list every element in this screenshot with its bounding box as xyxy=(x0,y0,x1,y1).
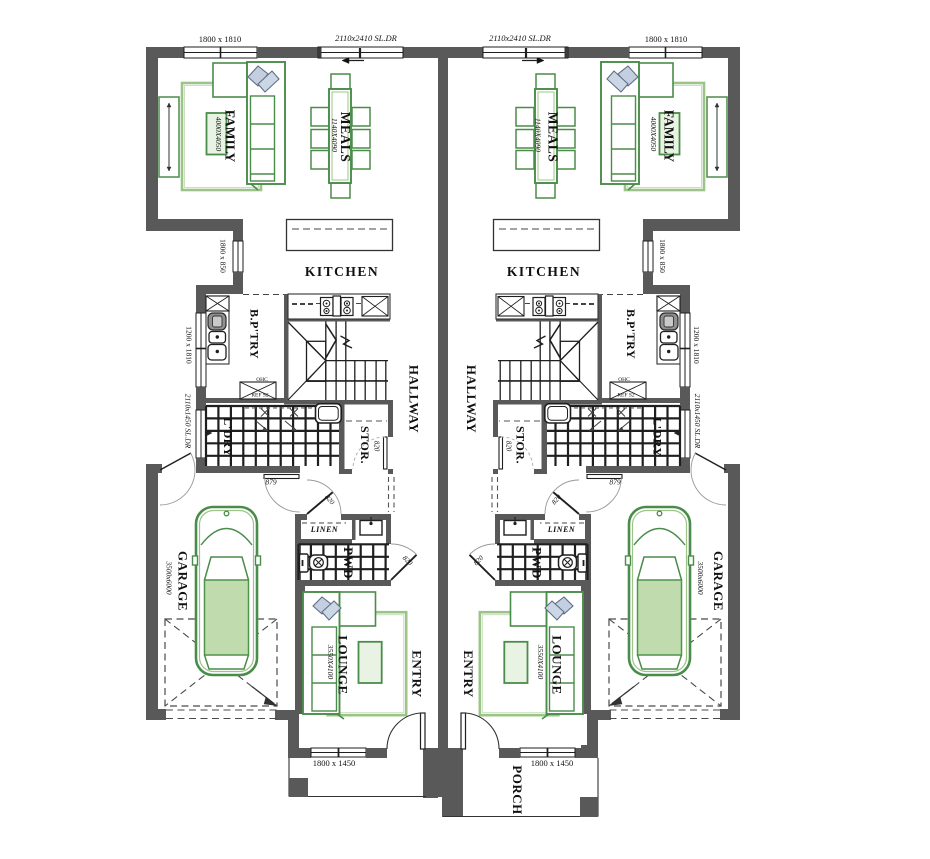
svg-text:820: 820 xyxy=(505,441,513,452)
svg-text:LOUNGE: LOUNGE xyxy=(336,635,351,694)
svg-text:2110x2410 SL.DR: 2110x2410 SL.DR xyxy=(335,33,398,43)
svg-text:4000X4050: 4000X4050 xyxy=(649,117,658,152)
svg-text:GARAGE: GARAGE xyxy=(711,551,726,611)
svg-text:KITCHEN: KITCHEN xyxy=(305,264,379,279)
svg-text:L'DRY: L'DRY xyxy=(650,417,664,456)
svg-text:MEALS: MEALS xyxy=(546,112,561,163)
svg-text:ENTRY: ENTRY xyxy=(410,650,425,698)
svg-text:1800 x 1810: 1800 x 1810 xyxy=(645,34,688,44)
svg-text:PORCH: PORCH xyxy=(510,765,525,814)
svg-text:HALLWAY: HALLWAY xyxy=(464,365,479,433)
svg-text:LOUNGE: LOUNGE xyxy=(550,635,565,694)
svg-text:B.P'TRY: B.P'TRY xyxy=(624,309,638,359)
svg-text:OHC: OHC xyxy=(256,377,268,383)
svg-text:1140X4090: 1140X4090 xyxy=(330,118,339,152)
svg-text:PWD: PWD xyxy=(341,547,356,579)
svg-text:L'DRY: L'DRY xyxy=(221,417,235,456)
svg-text:1200 x 1810: 1200 x 1810 xyxy=(185,326,194,364)
svg-text:STOR.: STOR. xyxy=(513,426,527,464)
svg-text:REF S2: REF S2 xyxy=(251,393,269,399)
svg-text:820: 820 xyxy=(373,441,381,452)
svg-text:LINEN: LINEN xyxy=(310,525,339,534)
svg-text:1800 x 1810: 1800 x 1810 xyxy=(199,34,242,44)
svg-text:2110x1450 SL.DR: 2110x1450 SL.DR xyxy=(693,394,702,449)
svg-text:B.P'TRY: B.P'TRY xyxy=(248,309,262,359)
svg-text:KITCHEN: KITCHEN xyxy=(507,264,581,279)
svg-text:1200 x 1810: 1200 x 1810 xyxy=(692,326,701,364)
svg-text:879: 879 xyxy=(265,478,277,487)
svg-text:3500x6000: 3500x6000 xyxy=(696,560,705,595)
svg-text:ENTRY: ENTRY xyxy=(461,650,476,698)
svg-text:GARAGE: GARAGE xyxy=(176,551,191,611)
svg-text:879: 879 xyxy=(609,478,621,487)
svg-text:1800 x 1450: 1800 x 1450 xyxy=(313,758,356,768)
svg-text:OHC: OHC xyxy=(618,377,630,383)
svg-text:4000X4050: 4000X4050 xyxy=(214,117,223,152)
svg-text:PWD: PWD xyxy=(530,547,545,579)
svg-text:FAMILY: FAMILY xyxy=(662,110,677,163)
svg-text:1800 x 850: 1800 x 850 xyxy=(219,239,228,273)
svg-text:3550X4100: 3550X4100 xyxy=(326,644,335,680)
svg-text:1140X4090: 1140X4090 xyxy=(533,118,542,152)
svg-text:REF S2: REF S2 xyxy=(617,393,635,399)
svg-text:LINEN: LINEN xyxy=(547,525,576,534)
svg-text:2110x1450 SL.DR: 2110x1450 SL.DR xyxy=(184,394,193,449)
svg-text:3500x6000: 3500x6000 xyxy=(165,560,174,595)
svg-text:3550X4100: 3550X4100 xyxy=(536,644,545,680)
svg-text:MEALS: MEALS xyxy=(338,112,353,163)
svg-text:1800 x 850: 1800 x 850 xyxy=(658,239,667,273)
svg-text:HALLWAY: HALLWAY xyxy=(407,365,422,433)
svg-text:STOR.: STOR. xyxy=(358,426,372,464)
svg-text:FAMILY: FAMILY xyxy=(223,110,238,163)
svg-text:1800 x 1450: 1800 x 1450 xyxy=(531,758,574,768)
svg-text:2110x2410 SL.DR: 2110x2410 SL.DR xyxy=(489,33,552,43)
